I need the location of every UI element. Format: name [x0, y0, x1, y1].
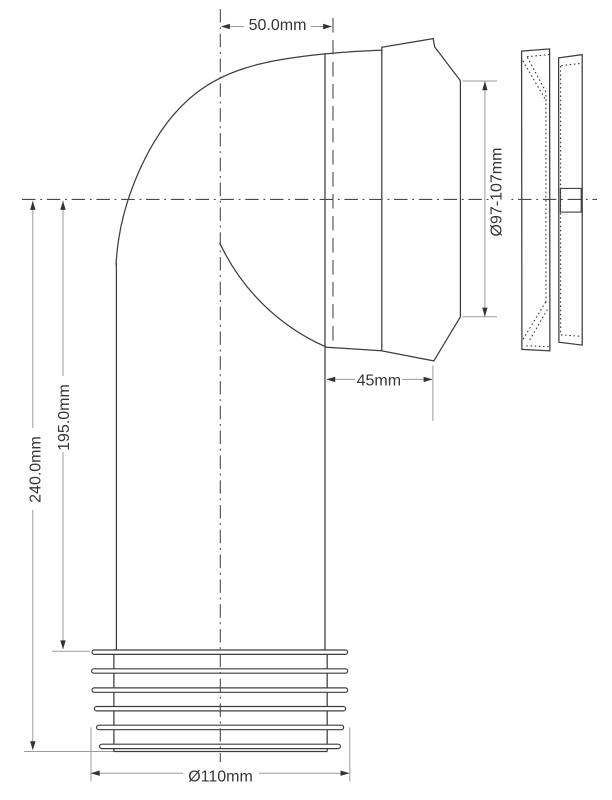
svg-text:Ø97-107mm: Ø97-107mm — [488, 148, 505, 237]
svg-text:Ø110mm: Ø110mm — [188, 769, 253, 786]
svg-text:50.0mm: 50.0mm — [249, 17, 307, 34]
svg-text:240.0mm: 240.0mm — [28, 436, 45, 503]
svg-text:45mm: 45mm — [357, 373, 401, 390]
svg-text:195.0mm: 195.0mm — [56, 384, 73, 451]
